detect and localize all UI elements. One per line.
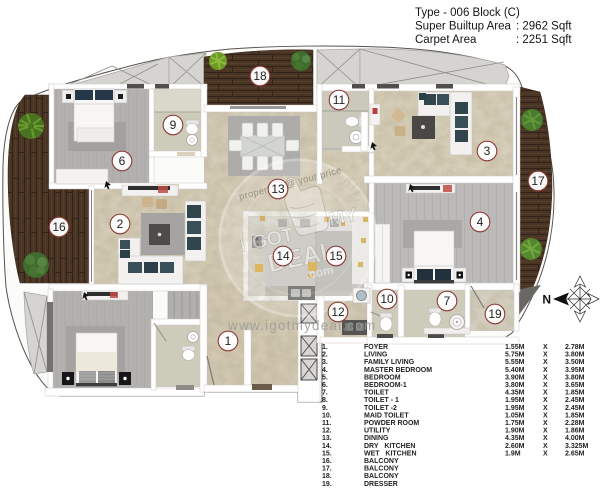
svg-text:TOILET: TOILET: [364, 390, 389, 397]
svg-text:4.35M: 4.35M: [505, 390, 525, 397]
svg-text:3.80M: 3.80M: [565, 374, 585, 381]
svg-text:1.9M: 1.9M: [505, 450, 521, 457]
svg-text:POWDER ROOM: POWDER ROOM: [364, 420, 419, 427]
svg-text:5.55M: 5.55M: [505, 359, 525, 366]
svg-text:3.95M: 3.95M: [565, 367, 585, 374]
svg-text:10.: 10.: [322, 412, 332, 419]
svg-text:5.40M: 5.40M: [505, 367, 525, 374]
svg-text:8.: 8.: [322, 397, 328, 404]
svg-text:15: 15: [329, 249, 343, 263]
svg-text:6.: 6.: [322, 382, 328, 389]
svg-text:TOILET - 1: TOILET - 1: [364, 397, 399, 404]
svg-text:2.78M: 2.78M: [565, 344, 585, 351]
svg-text:19.: 19.: [322, 481, 332, 488]
svg-text:www.igotmydeal.com: www.igotmydeal.com: [227, 318, 376, 333]
svg-text:MASTER BEDROOM: MASTER BEDROOM: [364, 367, 432, 374]
svg-text:X: X: [543, 412, 548, 419]
svg-text:WET KITCHEN: WET KITCHEN: [364, 450, 417, 457]
svg-text:Super Builtup Area: Super Builtup Area: [415, 21, 512, 33]
svg-text:3: 3: [484, 144, 491, 158]
svg-text:2.45M: 2.45M: [565, 397, 585, 404]
svg-text:3.50M: 3.50M: [565, 359, 585, 366]
svg-text:17: 17: [531, 174, 545, 188]
svg-text:4: 4: [477, 215, 484, 229]
svg-text:4.: 4.: [322, 367, 328, 374]
svg-text:4.00M: 4.00M: [565, 435, 585, 442]
svg-text:9.: 9.: [322, 405, 328, 412]
svg-text:BALCONY: BALCONY: [364, 458, 399, 465]
svg-text:UTILITY: UTILITY: [364, 428, 391, 435]
svg-text:3.: 3.: [322, 359, 328, 366]
svg-text:11.: 11.: [322, 420, 331, 427]
svg-text:X: X: [543, 435, 548, 442]
svg-text:18: 18: [253, 69, 267, 83]
svg-text:BEDROOM: BEDROOM: [364, 374, 401, 381]
svg-text:1.95M: 1.95M: [505, 405, 525, 412]
svg-text:3.325M: 3.325M: [565, 443, 589, 450]
svg-text:X: X: [543, 359, 548, 366]
svg-text:6: 6: [119, 154, 126, 168]
svg-text:1.90M: 1.90M: [505, 428, 525, 435]
svg-text:X: X: [543, 420, 548, 427]
svg-text:10: 10: [380, 292, 394, 306]
svg-text:1.05M: 1.05M: [505, 412, 525, 419]
svg-text:FAMILY LIVING: FAMILY LIVING: [364, 359, 415, 366]
svg-text:X: X: [543, 374, 548, 381]
svg-text:3.65M: 3.65M: [565, 382, 585, 389]
svg-text:Type - 006 Block (C): Type - 006 Block (C): [415, 7, 520, 19]
svg-text:12: 12: [331, 305, 345, 319]
svg-text:3.80M: 3.80M: [505, 382, 525, 389]
svg-text:DRY KITCHEN: DRY KITCHEN: [364, 443, 415, 450]
svg-text:N: N: [542, 293, 551, 307]
svg-text:2.45M: 2.45M: [565, 405, 585, 412]
svg-text:DINING: DINING: [364, 435, 389, 442]
svg-text:DRESSER: DRESSER: [364, 481, 398, 488]
svg-text:1.85M: 1.85M: [565, 390, 585, 397]
svg-text:16.: 16.: [322, 458, 332, 465]
svg-text:11: 11: [333, 93, 346, 107]
svg-text:14.: 14.: [322, 443, 332, 450]
svg-text:1.85M: 1.85M: [565, 412, 585, 419]
svg-text:12.: 12.: [322, 428, 332, 435]
svg-text:1.55M: 1.55M: [505, 344, 525, 351]
svg-text:BEDROOM-1: BEDROOM-1: [364, 382, 407, 389]
svg-text:5.75M: 5.75M: [505, 352, 525, 359]
svg-text:X: X: [543, 450, 548, 457]
svg-text:BALCONY: BALCONY: [364, 466, 399, 473]
svg-text:X: X: [543, 443, 548, 450]
svg-text:X: X: [543, 352, 548, 359]
svg-text:2.: 2.: [322, 352, 328, 359]
svg-text:MAID TOILET: MAID TOILET: [364, 412, 409, 419]
svg-text:9: 9: [170, 118, 177, 132]
svg-text:X: X: [543, 428, 548, 435]
svg-text:13: 13: [271, 182, 285, 196]
svg-text:1.86M: 1.86M: [565, 428, 585, 435]
svg-text:2.28M: 2.28M: [565, 420, 585, 427]
svg-text:1.95M: 1.95M: [505, 397, 525, 404]
svg-text:X: X: [543, 405, 548, 412]
svg-text:2: 2: [117, 217, 124, 231]
svg-text:2.60M: 2.60M: [505, 443, 525, 450]
svg-text:X: X: [543, 344, 548, 351]
svg-text:4.35M: 4.35M: [505, 435, 525, 442]
svg-text:19: 19: [488, 307, 502, 321]
svg-text:14: 14: [276, 249, 290, 263]
svg-text:BALCONY: BALCONY: [364, 473, 399, 480]
svg-text:16: 16: [52, 220, 66, 234]
svg-text:FOYER: FOYER: [364, 344, 388, 351]
svg-text:: 2251 Sqft: : 2251 Sqft: [516, 34, 572, 46]
svg-text:17.: 17.: [322, 466, 332, 473]
svg-text:1.75M: 1.75M: [505, 420, 525, 427]
svg-text:5.: 5.: [322, 374, 328, 381]
svg-text:LIVING: LIVING: [364, 352, 388, 359]
svg-text:7.: 7.: [322, 390, 328, 397]
svg-text:13.: 13.: [322, 435, 332, 442]
svg-text:TOILET -2: TOILET -2: [364, 405, 397, 412]
svg-text:15.: 15.: [322, 450, 332, 457]
svg-text:1: 1: [225, 334, 232, 348]
svg-text:1.: 1.: [322, 344, 328, 351]
svg-text:X: X: [543, 397, 548, 404]
svg-text:X: X: [543, 382, 548, 389]
svg-text:18.: 18.: [322, 473, 332, 480]
svg-text:X: X: [543, 390, 548, 397]
svg-text:3.80M: 3.80M: [565, 352, 585, 359]
svg-text:2.65M: 2.65M: [565, 450, 585, 457]
svg-text:Carpet Area: Carpet Area: [415, 34, 477, 46]
svg-text:3.90M: 3.90M: [505, 374, 525, 381]
svg-text:: 2962 Sqft: : 2962 Sqft: [516, 21, 572, 33]
svg-text:X: X: [543, 367, 548, 374]
svg-text:7: 7: [444, 294, 451, 308]
